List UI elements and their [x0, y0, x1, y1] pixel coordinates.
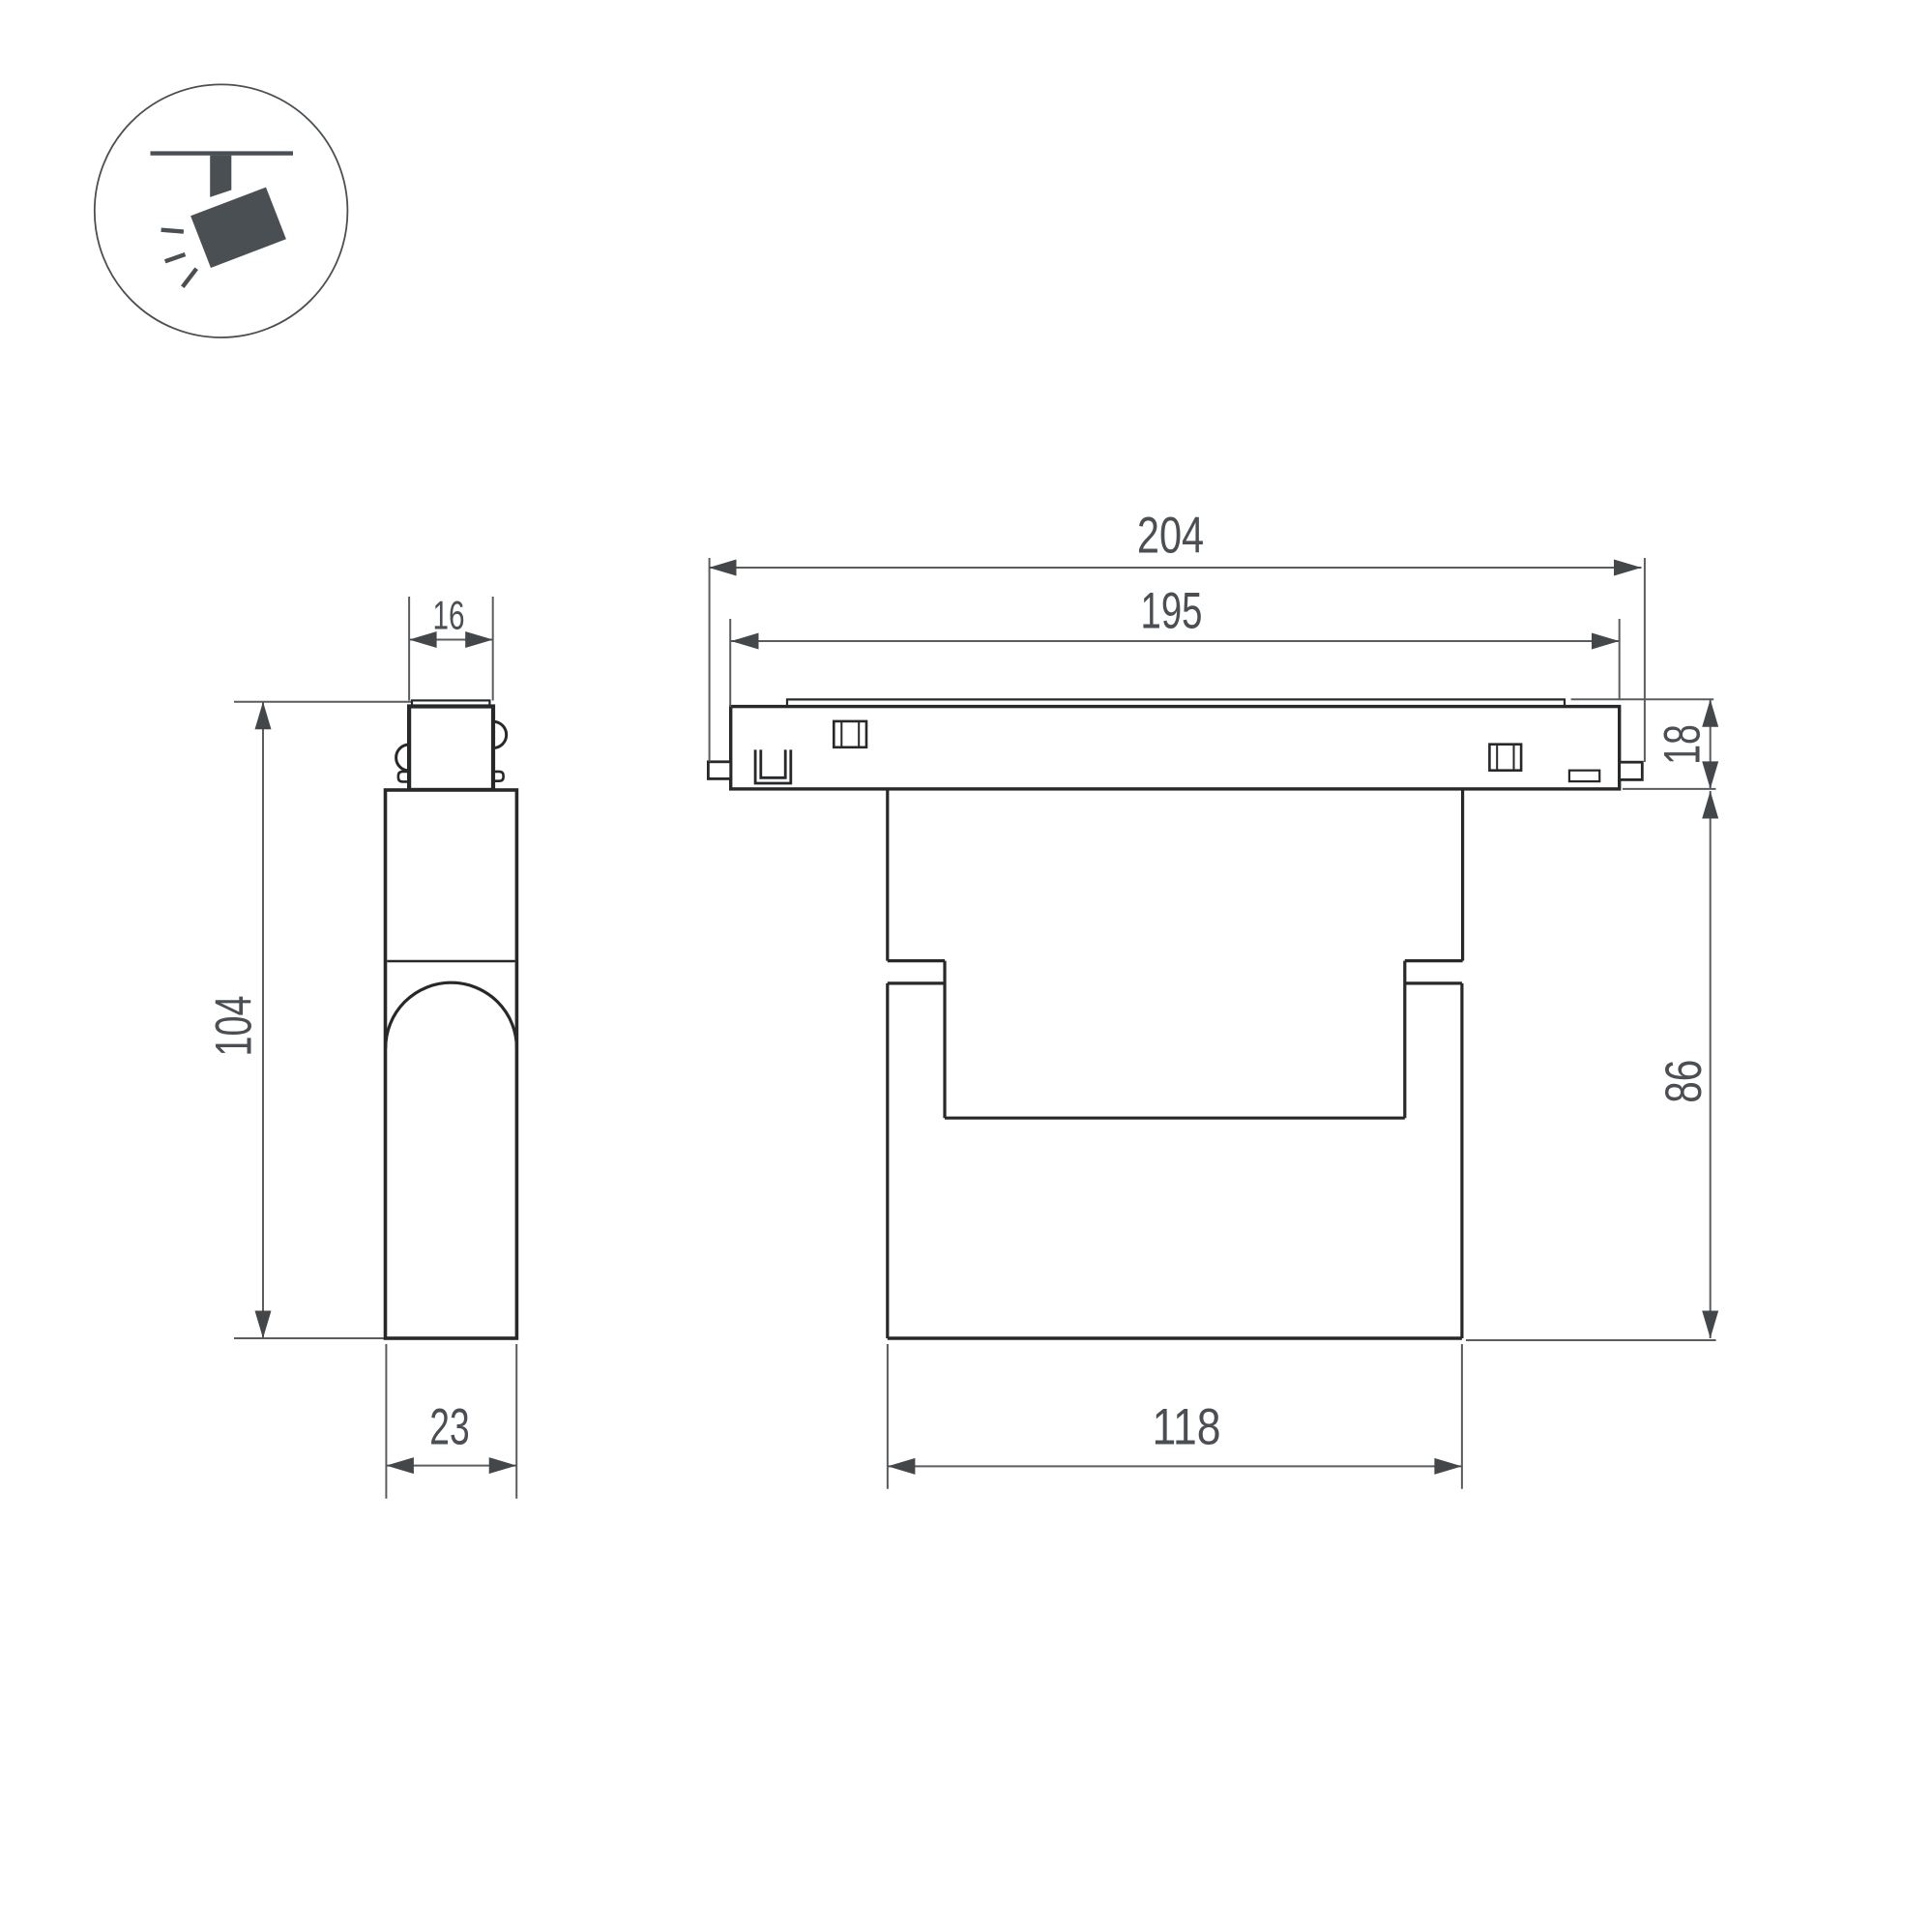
svg-text:204: 204 [1137, 508, 1204, 565]
svg-text:23: 23 [429, 1398, 469, 1455]
svg-text:18: 18 [1654, 724, 1712, 765]
svg-text:195: 195 [1141, 583, 1203, 640]
svg-text:86: 86 [1655, 1060, 1712, 1103]
svg-text:16: 16 [433, 592, 465, 637]
svg-text:118: 118 [1153, 1398, 1221, 1455]
svg-text:104: 104 [206, 996, 263, 1057]
